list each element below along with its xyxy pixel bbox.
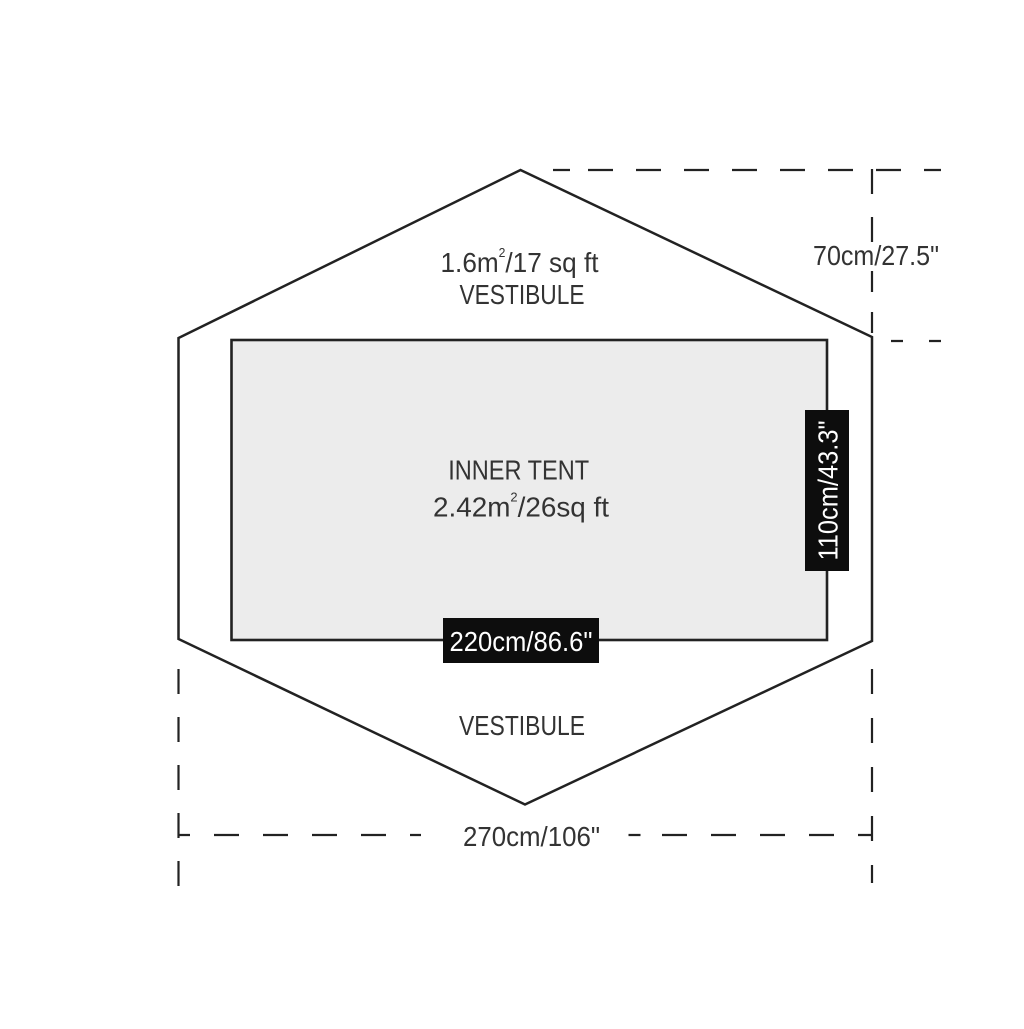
svg-text:70cm/27.5": 70cm/27.5" [813,240,939,271]
svg-text:INNER TENT: INNER TENT [448,455,589,486]
svg-text:110cm/43.3": 110cm/43.3" [813,421,844,561]
svg-text:VESTIBULE: VESTIBULE [459,710,585,741]
svg-text:270cm/106": 270cm/106" [463,821,600,852]
svg-text:2.42m2/26sq ft: 2.42m2/26sq ft [433,490,609,523]
svg-text:220cm/86.6": 220cm/86.6" [450,626,593,657]
svg-text:VESTIBULE: VESTIBULE [460,279,585,310]
svg-text:1.6m2/17 sq ft: 1.6m2/17 sq ft [441,245,599,278]
